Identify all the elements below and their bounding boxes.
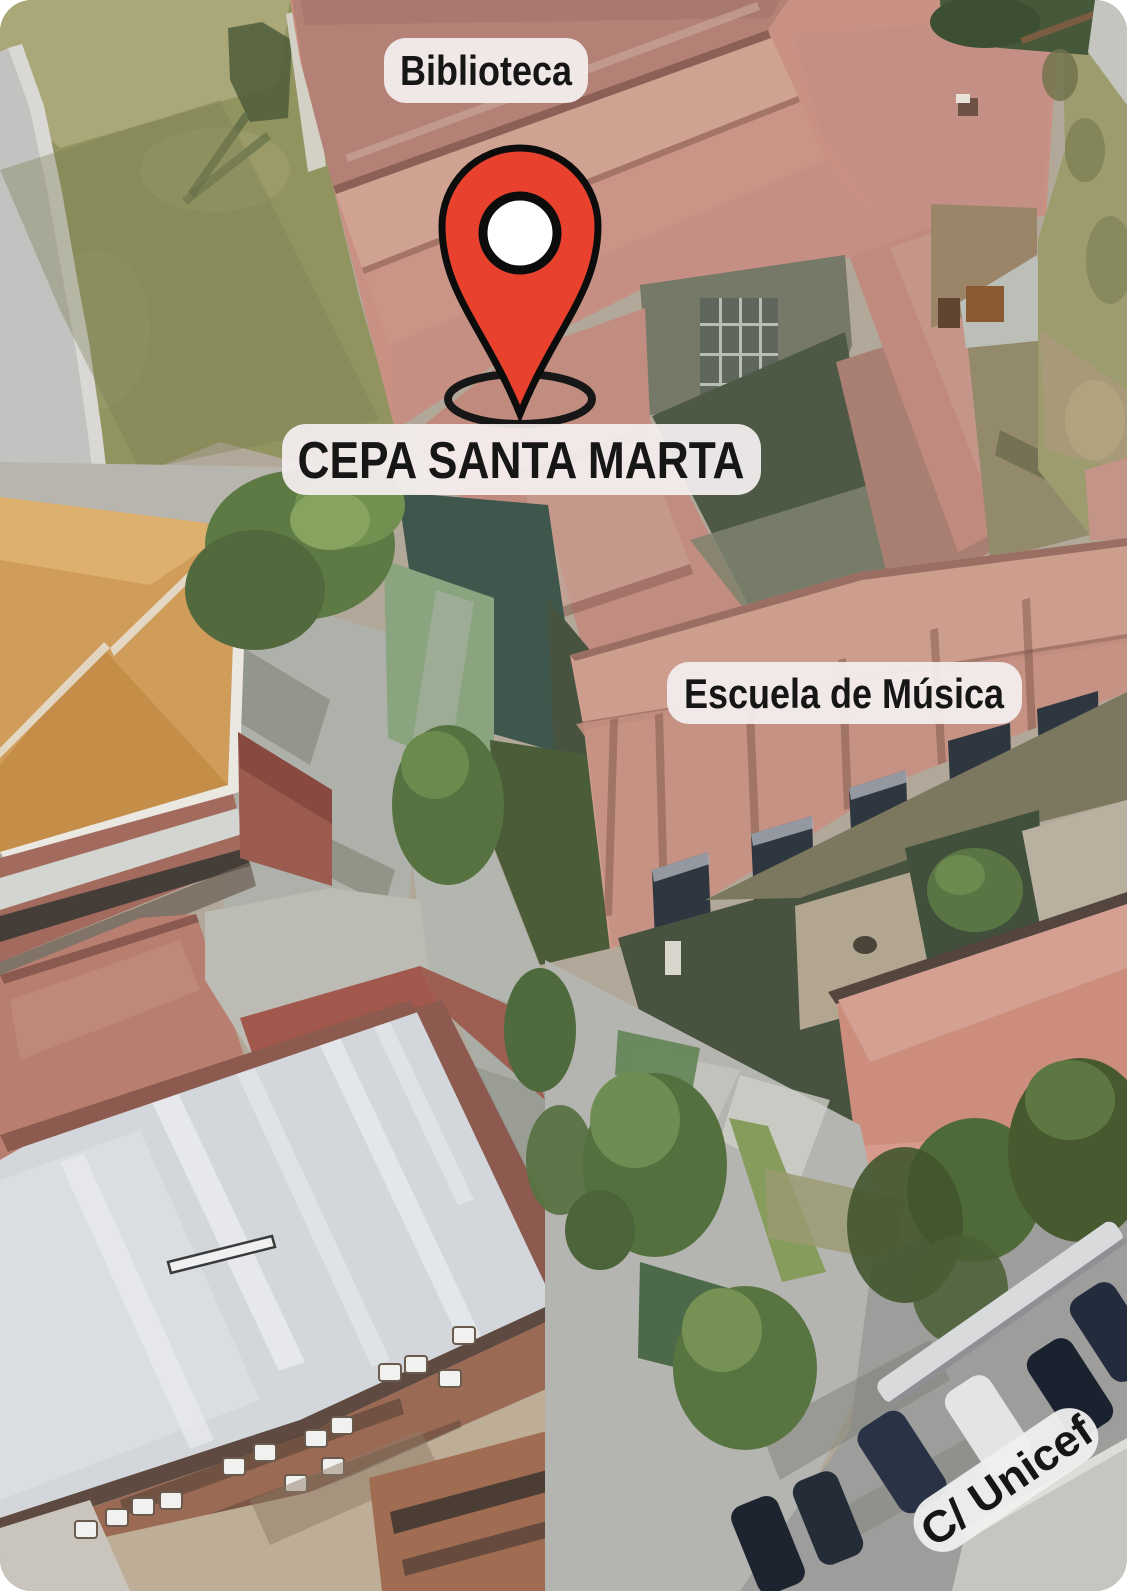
svg-text:CEPA SANTA MARTA: CEPA SANTA MARTA (298, 432, 745, 490)
svg-text:Biblioteca: Biblioteca (400, 47, 573, 94)
svg-text:Escuela de Música: Escuela de Música (684, 670, 1005, 717)
